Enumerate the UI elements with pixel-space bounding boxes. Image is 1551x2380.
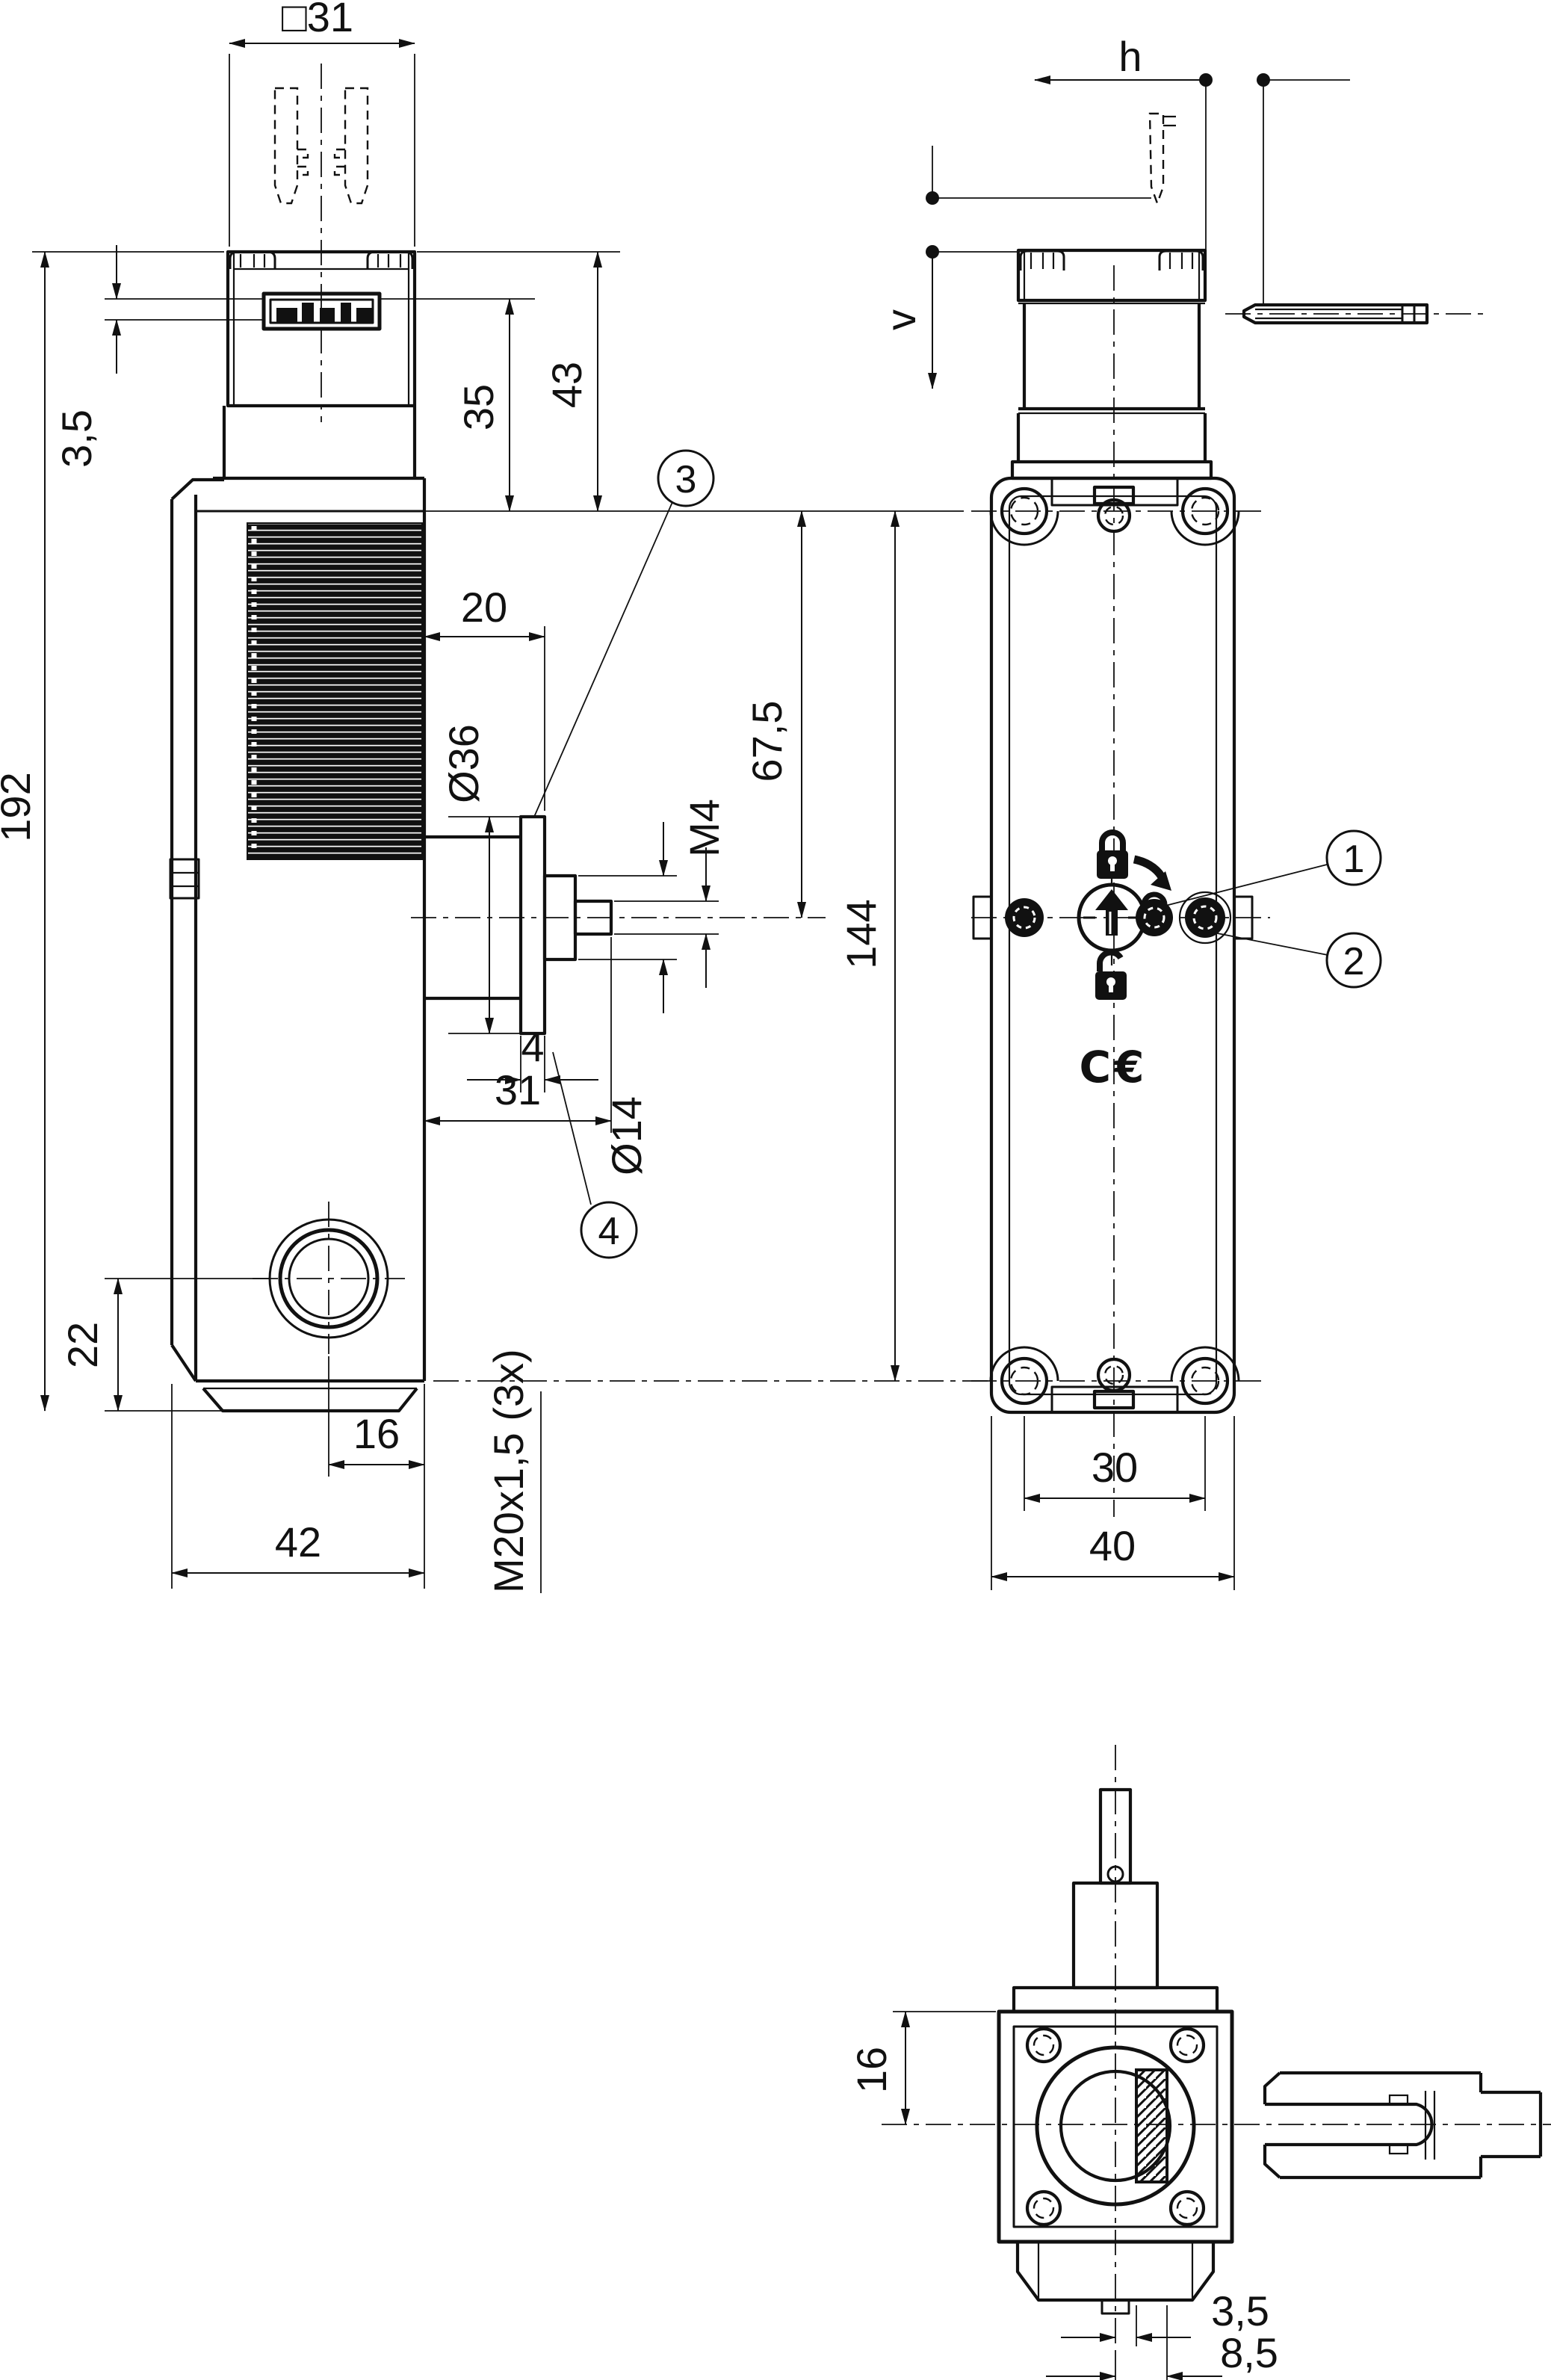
plate-top-chamfer	[172, 480, 224, 499]
front-view	[170, 64, 826, 1411]
callout-3: 3	[675, 458, 697, 501]
handle-flange	[521, 817, 545, 1033]
dim-cover-offset: 3,5	[53, 409, 100, 468]
front-dimensions: □31 192 3,5 35 43 20 Ø36 M4	[0, 0, 990, 1593]
dim-total-height: 192	[0, 772, 39, 841]
arrow-up-icon	[1095, 889, 1128, 936]
boss-bottom-right	[1171, 1347, 1239, 1381]
dim-window-height: 35	[455, 384, 502, 430]
side-actuator-blade	[1150, 114, 1176, 203]
dim-flange-dia: Ø36	[440, 724, 487, 803]
dim-body-depth: 40	[1089, 1522, 1136, 1569]
technical-dimension-drawing: □31 192 3,5 35 43 20 Ø36 M4	[0, 0, 1551, 2380]
callouts: 3 4 1 2	[534, 451, 1381, 1258]
blade-notch-left	[297, 149, 308, 175]
side-dimensions: 30 40	[991, 1416, 1234, 1590]
switch-body-front	[170, 406, 424, 1411]
foot-outline	[203, 1388, 417, 1411]
dim-slot-near: 3,5	[1211, 2287, 1269, 2334]
head-cap-left	[230, 252, 275, 269]
dim-gland-thread: M20x1,5 (3x)	[485, 1349, 532, 1593]
ribbed-label-area	[247, 523, 422, 859]
approach-v: v	[877, 146, 1151, 389]
release-handle	[411, 817, 826, 1033]
dim-handle-length: 20	[461, 584, 507, 631]
dim-shaft-dia: Ø14	[603, 1096, 650, 1175]
side-view: h v	[877, 33, 1483, 1590]
dim-body-width: 42	[275, 1518, 321, 1565]
callout-4: 4	[598, 1210, 620, 1253]
actuator-blade-right	[345, 88, 368, 203]
boss-top-right	[1171, 511, 1239, 545]
cable-gland	[253, 1202, 405, 1354]
dim-head-width: □31	[282, 0, 353, 40]
dim-head-height: 43	[543, 362, 590, 408]
callout-2: 2	[1343, 940, 1365, 983]
dim-thread: M4	[681, 799, 728, 857]
label-h: h	[1118, 33, 1142, 80]
dim-flange-thickness: 4	[521, 1023, 544, 1070]
callout-1: 1	[1343, 838, 1365, 881]
locked-icon	[1097, 832, 1128, 879]
actuator-blade-left	[275, 88, 297, 203]
dim-screw-spacing: 30	[1092, 1444, 1138, 1491]
boss-top-left	[991, 511, 1058, 545]
lock-release-symbols	[1005, 832, 1230, 1000]
label-v: v	[877, 309, 924, 330]
dim-body-height: 144	[838, 899, 885, 968]
actuator-blades-icon	[275, 64, 368, 422]
drawing-page: □31 192 3,5 35 43 20 Ø36 M4	[0, 0, 1551, 2380]
top-view: 16 3,5 8,5	[848, 1745, 1551, 2380]
actuator-slot	[1136, 2070, 1167, 2182]
dim-gland-offset: 22	[59, 1322, 106, 1368]
side-actuator-key	[1225, 305, 1483, 323]
blade-notch-right	[335, 149, 345, 175]
rotate-arrow-icon	[1134, 859, 1163, 880]
plate-bottom-chamfer	[172, 1345, 196, 1381]
head-cap-right	[368, 252, 412, 269]
boss-bottom-left	[991, 1347, 1058, 1381]
dim-gland-side-offset: 16	[353, 1410, 400, 1457]
ce-mark: C€	[1080, 1042, 1148, 1092]
top-actuator-key	[1265, 2073, 1541, 2177]
switch-head-side	[1012, 250, 1211, 478]
dim-edge-to-axis: 16	[848, 2047, 895, 2093]
dim-slot-far: 8,5	[1220, 2329, 1278, 2376]
dim-shaft-length: 31	[495, 1066, 541, 1113]
dim-axis-from-top: 67,5	[743, 701, 790, 782]
corner-screws	[1002, 489, 1228, 1403]
